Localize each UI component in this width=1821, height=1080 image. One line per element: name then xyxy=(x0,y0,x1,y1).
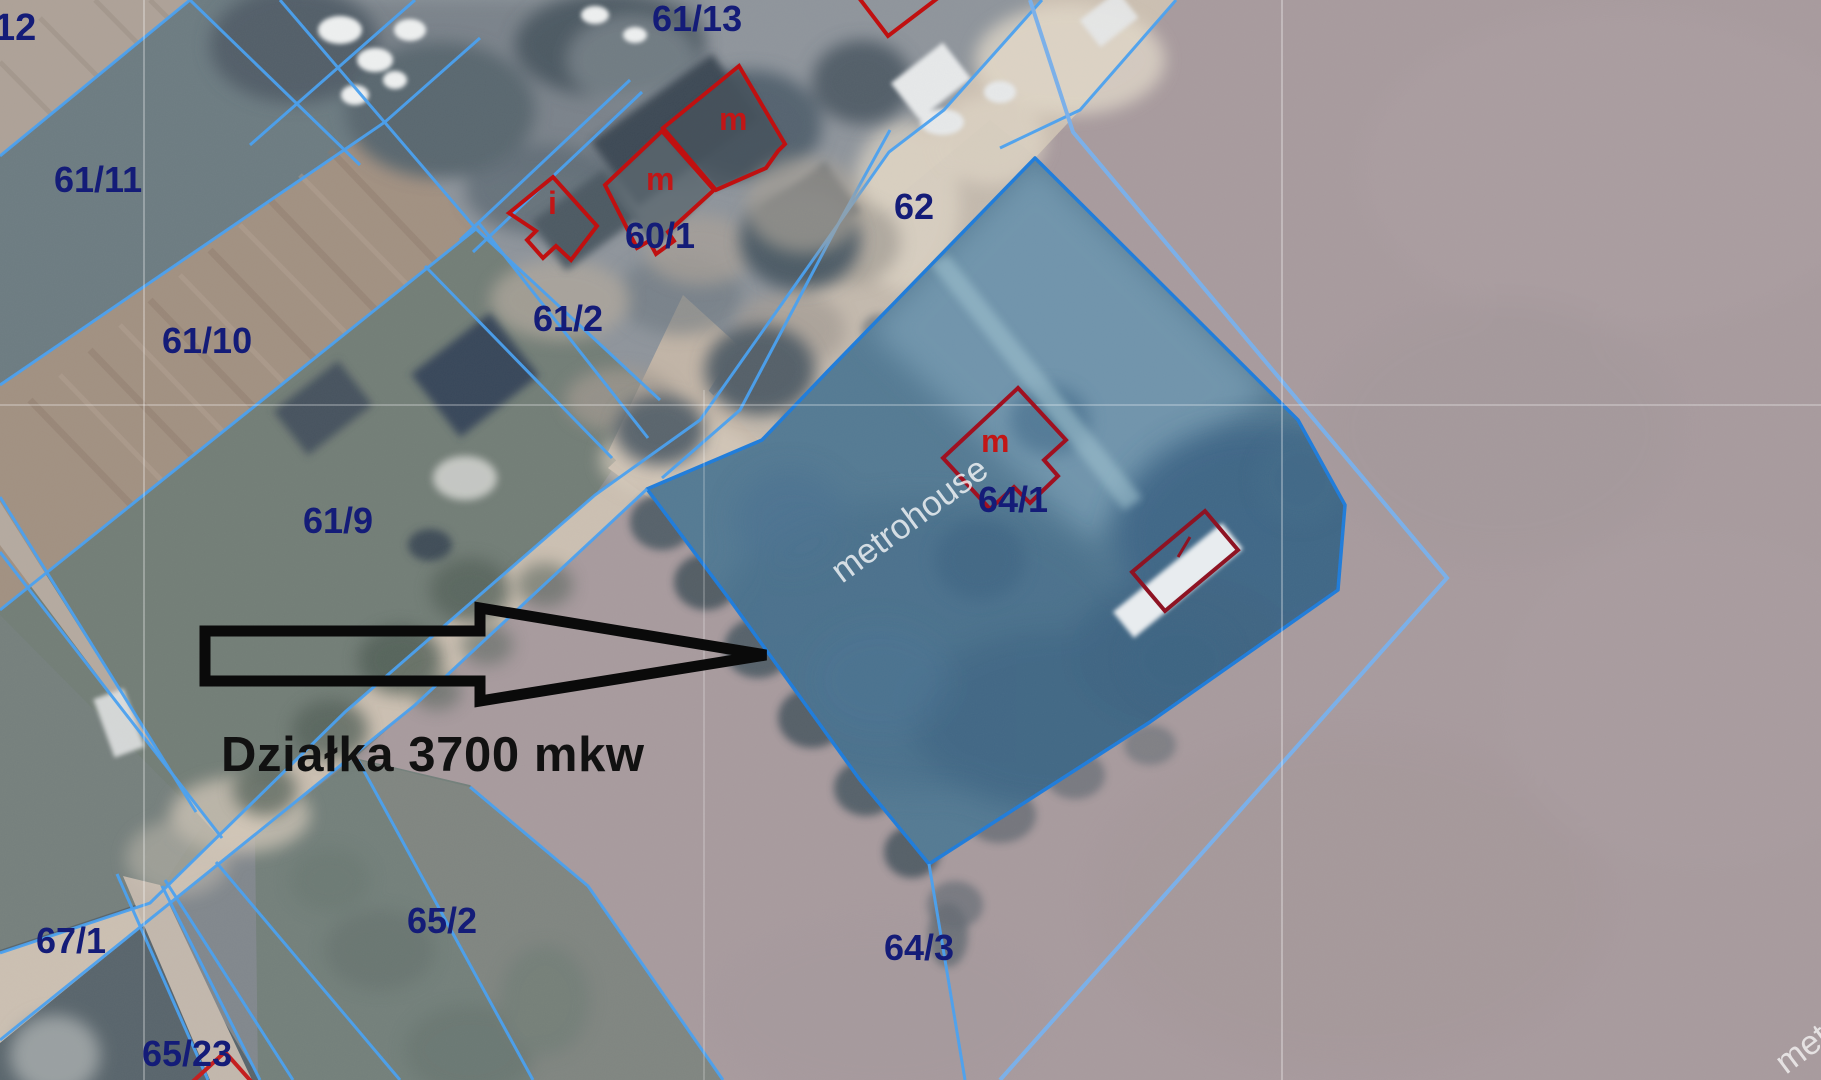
svg-text:65/23: 65/23 xyxy=(142,1033,232,1074)
svg-text:61/11: 61/11 xyxy=(54,159,142,200)
svg-text:67/1: 67/1 xyxy=(36,920,106,961)
svg-text:62: 62 xyxy=(894,186,934,227)
svg-text:60/1: 60/1 xyxy=(625,215,695,256)
svg-text:m: m xyxy=(646,161,674,197)
svg-text:m: m xyxy=(981,423,1009,459)
svg-text:61/2: 61/2 xyxy=(533,298,603,339)
svg-text:64/3: 64/3 xyxy=(884,927,954,968)
svg-text:12: 12 xyxy=(0,7,36,49)
svg-text:i: i xyxy=(548,185,557,221)
svg-text:65/2: 65/2 xyxy=(407,900,477,941)
svg-text:61/13: 61/13 xyxy=(652,0,742,39)
svg-text:61/10: 61/10 xyxy=(162,320,252,361)
svg-text:m: m xyxy=(719,101,747,137)
svg-text:Działka 3700 mkw: Działka 3700 mkw xyxy=(221,728,645,782)
svg-text:61/9: 61/9 xyxy=(303,500,373,541)
